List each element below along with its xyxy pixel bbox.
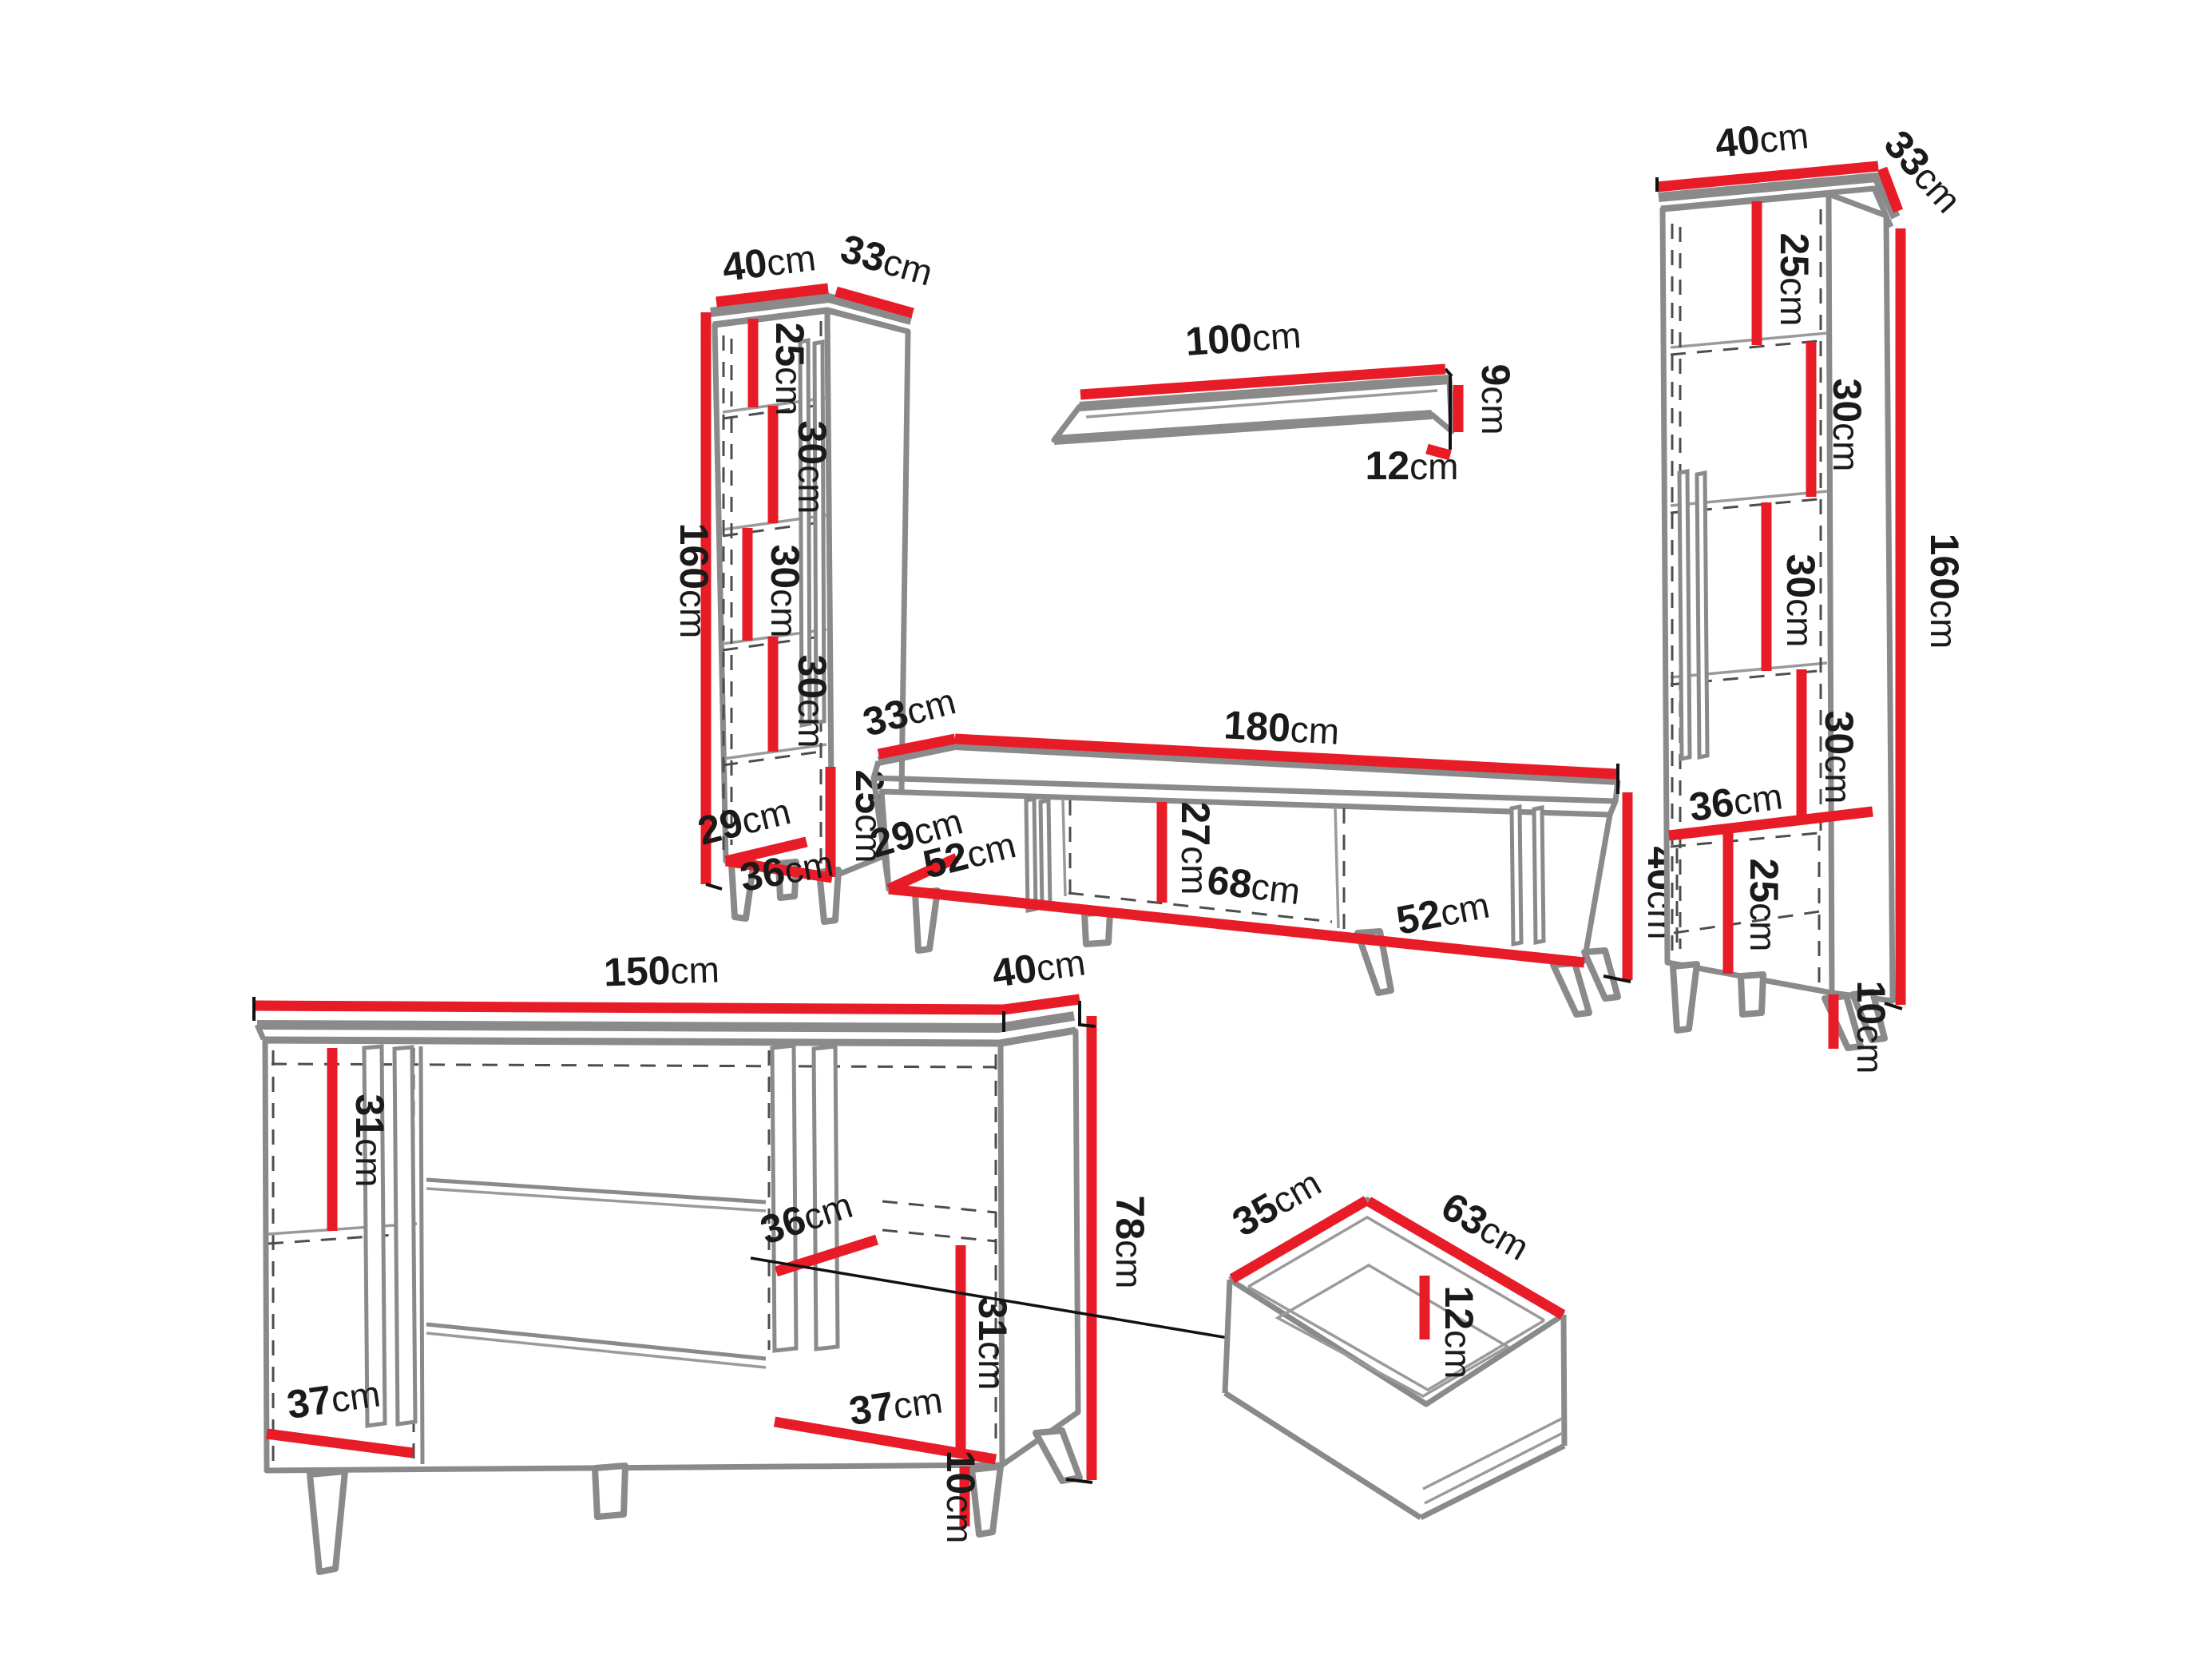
dimension-label-bottom-section: 25cm [1742, 859, 1786, 952]
dimension-label-width: 40cm [719, 234, 818, 290]
furniture-dimension-diagram: 40cm 33cm 160cm 25cm 30cm 30cm 30cm 25cm… [0, 0, 2212, 1659]
leg [1584, 951, 1618, 998]
dimension-label-height: 160cm [1922, 534, 1967, 649]
door-handle [394, 1047, 415, 1424]
wall-shelf: 100cm 9cm 12cm [1054, 312, 1518, 488]
dimension-label-depth: 40cm [989, 939, 1088, 996]
tv-stand: 33cm 180cm 29cm 52cm 27cm 68cm 52cm 40cm [858, 677, 1684, 1014]
door-handle [1534, 808, 1544, 943]
dimension-label-left-inner: 31cm [347, 1094, 392, 1188]
dimension-label-height: 160cm [672, 523, 716, 639]
dimension-label-length: 100cm [1184, 312, 1302, 364]
dimension-label-section: 30cm [1825, 379, 1869, 472]
sideboard: 150cm 40cm 31cm 36cm 78cm 31cm 37cm 37cm… [254, 939, 1152, 1572]
leg [595, 1466, 625, 1517]
door-handle [1041, 800, 1050, 908]
leg [1553, 963, 1589, 1014]
dimension-line-length [254, 1006, 1004, 1010]
door-handle [1679, 471, 1690, 759]
sideboard-top-lid [257, 1016, 1074, 1028]
dimension-label-width: 40cm [1713, 112, 1810, 166]
dimension-label-section: 25cm [1772, 233, 1817, 327]
dimension-label-length: 150cm [603, 947, 720, 995]
cabinet-right: 40cm 33cm 25cm 30cm 30cm 30cm 160cm 36cm… [1657, 112, 1972, 1074]
dimension-label-right-inner: 31cm [970, 1297, 1015, 1391]
dimension-label-leg-height: 10cm [938, 1451, 983, 1544]
dimension-label-inner-height: 12cm [1437, 1286, 1481, 1379]
dimension-label-section: 30cm [790, 421, 834, 514]
dimension-label-section: 25cm [767, 323, 812, 416]
dimension-label-height: 78cm [1108, 1196, 1152, 1289]
sideboard-side-face [1001, 1031, 1078, 1465]
leg [1036, 1431, 1080, 1481]
dimension-label-depth: 33cm [836, 226, 938, 295]
dimension-label-section: 30cm [790, 655, 834, 748]
cabinet-right-side-face [1829, 194, 1893, 1001]
drawer-right-edge [1564, 1315, 1564, 1446]
drawer-detail: 35cm 63cm 12cm [1225, 1160, 1564, 1518]
leg [1741, 974, 1763, 1014]
leg [915, 891, 938, 951]
dimension-label-leg-height: 10cm [1849, 981, 1893, 1074]
dimension-label-section: 30cm [763, 545, 807, 638]
dimension-label-section: 30cm [1778, 554, 1823, 648]
tv-stand-top-back-edge [955, 745, 1618, 780]
dimension-label-height: 9cm [1473, 363, 1518, 435]
dimension-line-depth [1004, 999, 1080, 1010]
dimension-label-depth: 12cm [1366, 443, 1459, 488]
dimension-label-section: 30cm [1817, 711, 1861, 804]
door-handle [1697, 473, 1707, 757]
door-handle [1512, 807, 1521, 944]
partition [421, 1046, 422, 1464]
door-handle [1026, 799, 1036, 911]
dimension-tick [706, 884, 722, 889]
leg [1673, 964, 1697, 1030]
dimension-label-length: 180cm [1223, 702, 1340, 752]
leg [310, 1471, 345, 1572]
